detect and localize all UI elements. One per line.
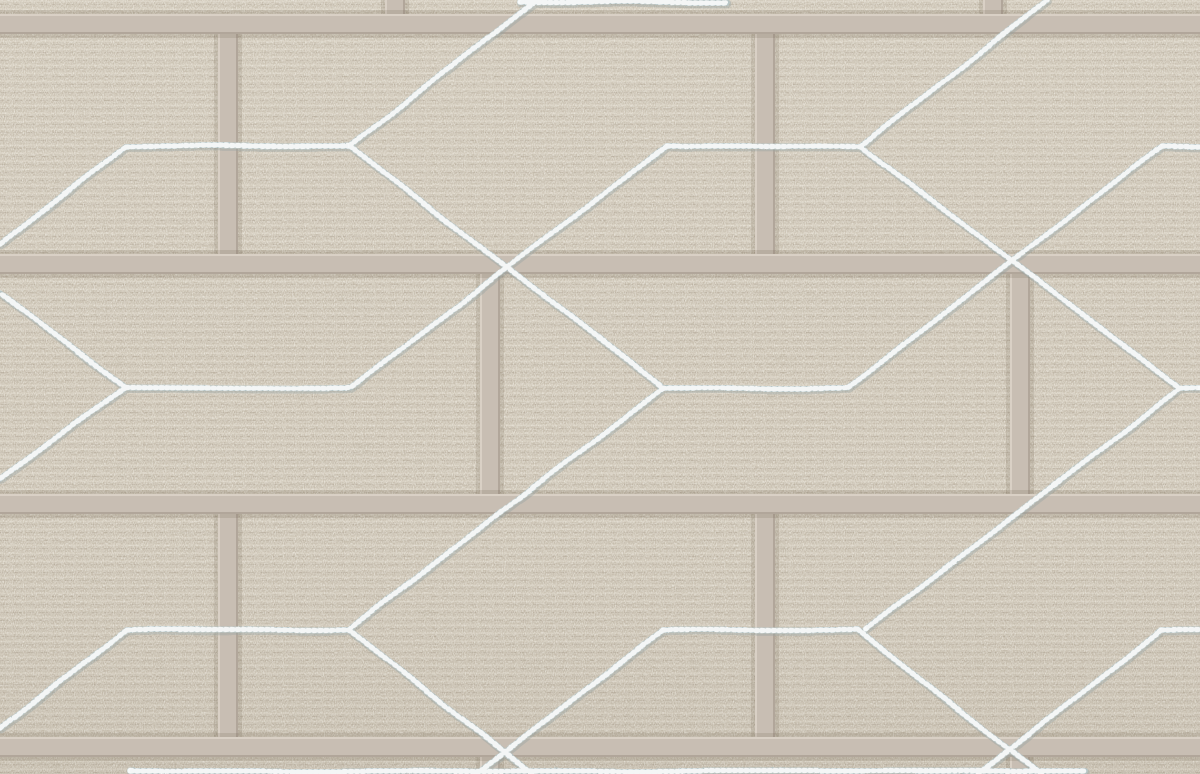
- vertical-mortar-joint: [751, 514, 755, 737]
- wallpaper-art: [0, 0, 1200, 774]
- wallpaper-swatch-photo: [0, 0, 1200, 774]
- horizontal-mortar-band: [0, 490, 1200, 494]
- horizontal-mortar-band: [0, 10, 1200, 14]
- vertical-mortar-joint: [1006, 274, 1010, 494]
- horizontal-mortar-band: [0, 733, 1200, 737]
- vertical-mortar-joint: [476, 274, 480, 494]
- vertical-mortar-joint: [214, 514, 218, 737]
